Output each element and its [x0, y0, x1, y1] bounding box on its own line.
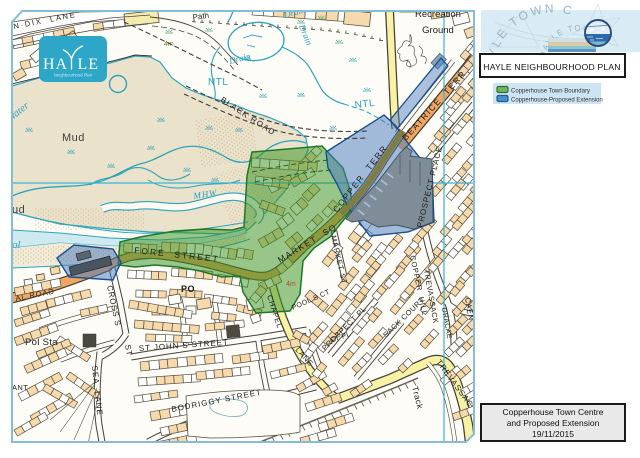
svg-text:Copperhouse Town Boundary: Copperhouse Town Boundary [511, 89, 590, 95]
svg-text:Copperhouse Town Centre: Copperhouse Town Centre [503, 407, 604, 417]
svg-text:19/11/2015: 19/11/2015 [532, 429, 574, 439]
svg-text:4m: 4m [286, 281, 296, 288]
svg-text:Neighbourhood Plan: Neighbourhood Plan [54, 73, 93, 78]
svg-text:Pol Sta: Pol Sta [25, 337, 58, 348]
svg-text:Ground: Ground [422, 25, 454, 36]
svg-text:NTL: NTL [354, 98, 375, 111]
svg-text:ud: ud [12, 204, 25, 216]
svg-text:ANT: ANT [12, 383, 28, 392]
svg-text:HAYLE NEIGHBOURHOOD PLAN: HAYLE NEIGHBOURHOOD PLAN [483, 62, 620, 72]
svg-text:4m: 4m [164, 41, 174, 48]
svg-text:Mud: Mud [62, 132, 85, 144]
svg-text:HA: HA [43, 56, 68, 73]
svg-text:Copperhouse-Proposed Extension: Copperhouse-Proposed Extension [511, 98, 603, 104]
svg-text:NTL: NTL [208, 77, 228, 88]
svg-text:LE: LE [78, 56, 100, 73]
svg-text:ool: ool [7, 240, 21, 251]
svg-text:PO: PO [181, 284, 195, 294]
svg-text:and Proposed Extension: and Proposed Extension [507, 418, 600, 428]
